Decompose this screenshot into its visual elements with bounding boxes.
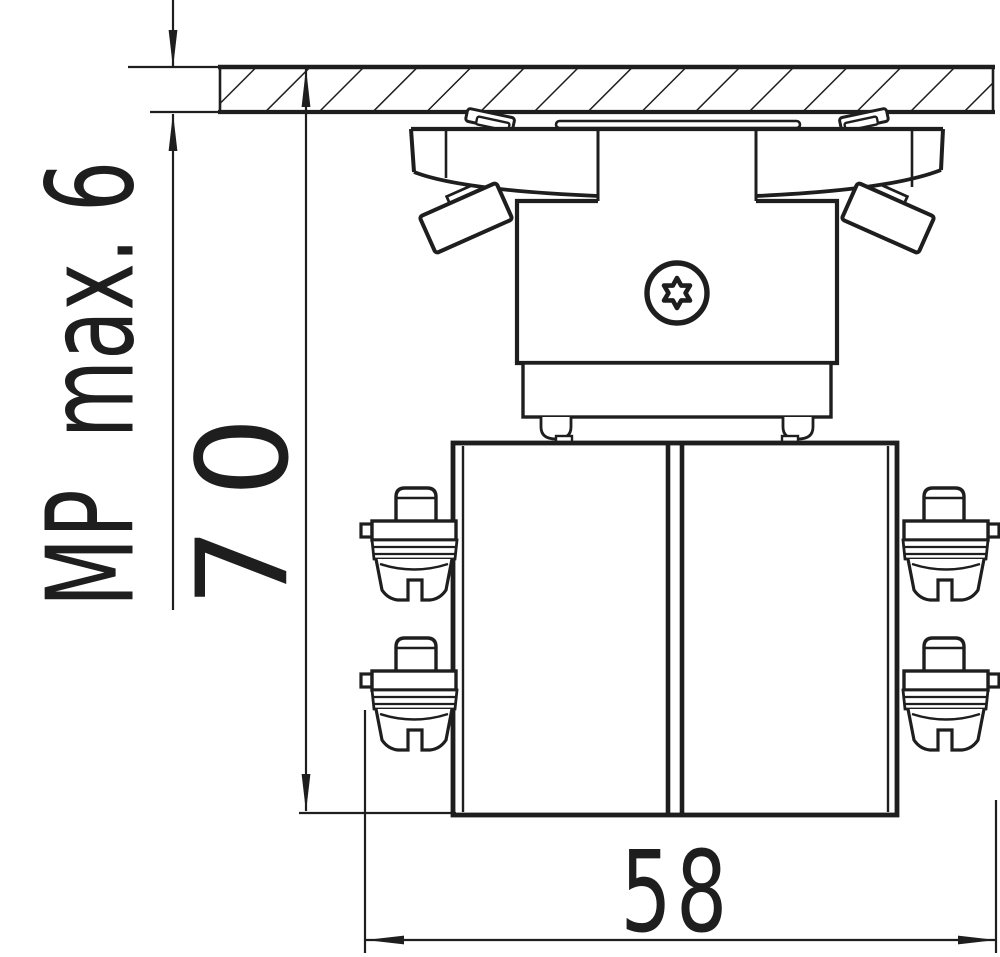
terminal-lower-right [903,638,999,750]
arrowhead [169,30,178,68]
dim-label-width: 58 [620,828,731,957]
housing-collar [523,363,831,417]
technical-drawing-canvas: MP max. 6 70 58 [0,0,1000,957]
arrowhead [302,774,311,812]
torx-screw-icon [647,263,707,323]
mounting-panel [218,67,995,112]
arrowhead [366,936,404,945]
actuator-housing [517,201,837,417]
panel-hatch [220,67,993,112]
terminal-upper-left [361,488,457,600]
dim-label-height: 70 [170,387,317,607]
terminal-upper-right [903,488,999,600]
contact-block [453,443,897,815]
dim-label-panel-thickness: MP max. 6 [22,161,162,607]
arrowhead [958,936,996,945]
terminal-lower-left [361,638,457,750]
arrowhead [169,113,178,151]
